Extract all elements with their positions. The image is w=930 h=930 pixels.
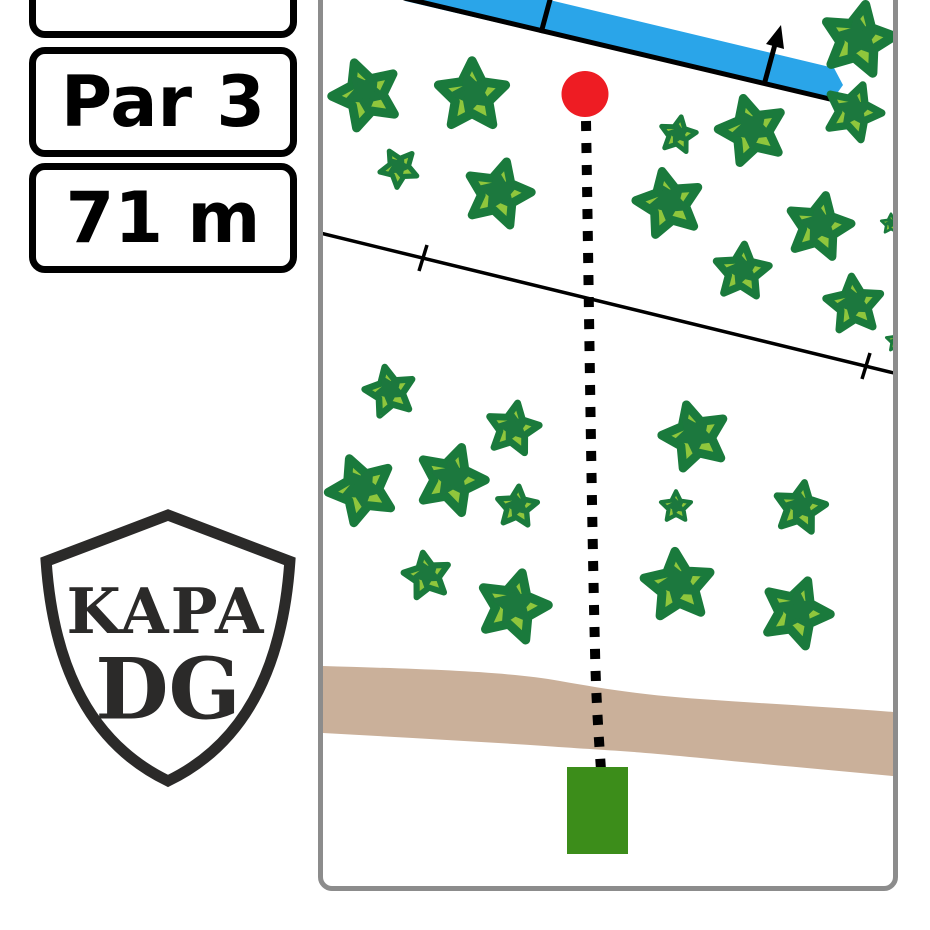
distance-box: 71 m — [29, 163, 297, 273]
course-map — [318, 0, 898, 891]
tree-icon — [712, 90, 790, 166]
hole-number-box — [29, 0, 297, 38]
tree-icon — [881, 214, 893, 232]
tree-icon — [824, 274, 883, 331]
tree-icon — [473, 564, 554, 643]
distance-label: 71 m — [66, 183, 261, 253]
tree-icon — [411, 437, 492, 516]
tree-icon — [886, 330, 893, 350]
tree-icon — [631, 165, 706, 237]
logo-text-line1: KAPA — [66, 574, 265, 648]
tree-icon — [783, 189, 856, 259]
gravel-path — [323, 666, 893, 776]
shield-icon: KAPA DG — [34, 507, 302, 791]
distance-marker-line — [323, 233, 893, 379]
tree-icon — [818, 0, 893, 76]
tree-icon — [460, 154, 537, 229]
page: Par 3 71 m KAPA DG — [0, 0, 930, 930]
tree-icon — [496, 484, 539, 525]
tree-icon — [323, 447, 402, 528]
tree-icon — [373, 142, 423, 191]
tree-icon — [642, 549, 713, 617]
logo-text-line2: DG — [95, 639, 241, 738]
tree-icon — [714, 242, 771, 297]
tree-icon — [324, 52, 406, 133]
tree-icon — [661, 491, 691, 520]
tree-icon — [656, 397, 733, 472]
basket-marker — [562, 71, 609, 117]
tree-icon — [485, 399, 543, 455]
tree-icon — [756, 570, 838, 651]
tree-icon — [401, 549, 453, 599]
course-map-canvas — [323, 0, 893, 886]
tree-icon — [772, 478, 829, 533]
tee-pad — [567, 767, 628, 854]
par-label: Par 3 — [61, 67, 265, 137]
club-logo: KAPA DG — [34, 507, 302, 791]
par-box: Par 3 — [29, 47, 297, 157]
tree-icon — [658, 114, 699, 153]
tree-icon — [438, 61, 505, 125]
tree-icon — [361, 362, 418, 417]
flight-line — [586, 121, 601, 770]
